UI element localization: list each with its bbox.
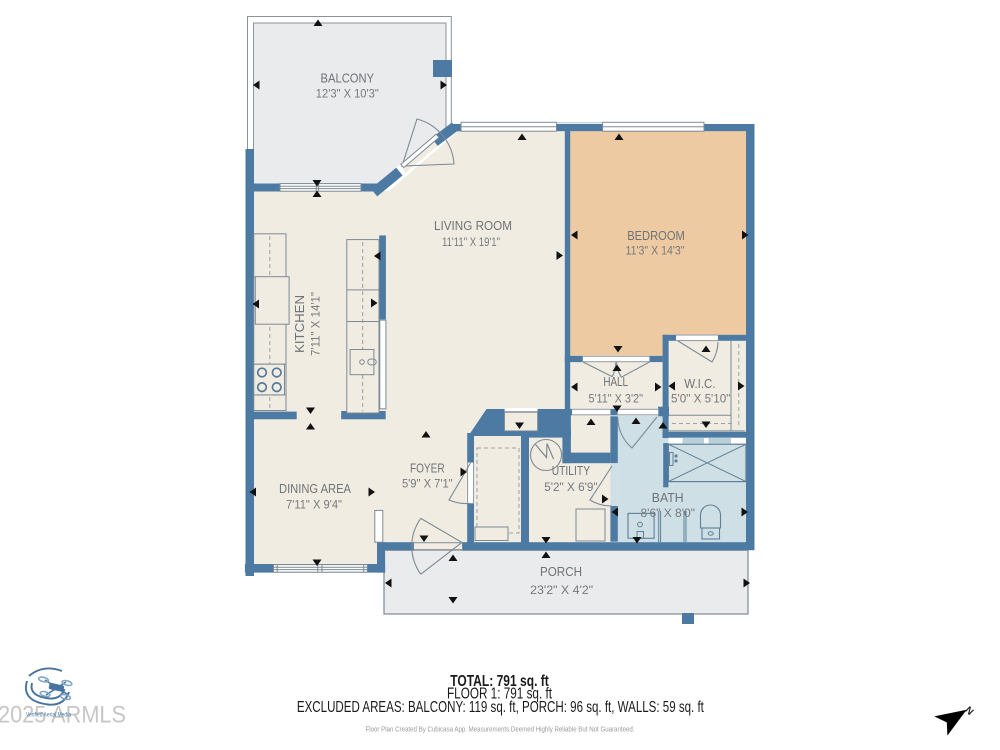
- svg-text:PORCH: PORCH: [540, 564, 582, 579]
- svg-text:23'2" X 4'2": 23'2" X 4'2": [530, 583, 593, 597]
- svg-text:7'11" X 14'1": 7'11" X 14'1": [309, 292, 323, 356]
- svg-text:BALCONY: BALCONY: [321, 71, 375, 86]
- svg-text:FOYER: FOYER: [410, 461, 445, 476]
- svg-text:5'2" X 6'9": 5'2" X 6'9": [544, 480, 597, 494]
- svg-text:11'11" X 19'1": 11'11" X 19'1": [442, 235, 500, 249]
- svg-text:5'11" X 3'2": 5'11" X 3'2": [588, 392, 643, 406]
- svg-text:Verified Aerial Media: Verified Aerial Media: [26, 712, 71, 719]
- svg-text:BATH: BATH: [652, 490, 684, 505]
- svg-text:12'3" X 10'3": 12'3" X 10'3": [316, 86, 379, 100]
- svg-text:LIVING ROOM: LIVING ROOM: [434, 218, 512, 233]
- svg-text:W.I.C.: W.I.C.: [684, 376, 715, 391]
- svg-text:5'0" X 5'10": 5'0" X 5'10": [671, 392, 730, 406]
- svg-text:7'11" X 9'4": 7'11" X 9'4": [286, 498, 342, 512]
- svg-text:UTILITY: UTILITY: [552, 463, 591, 478]
- svg-text:EXCLUDED AREAS: BALCONY: 119 s: EXCLUDED AREAS: BALCONY: 119 sq. ft, POR…: [297, 699, 705, 716]
- svg-text:Floor Plan Created By Cubicasa: Floor Plan Created By Cubicasa App. Meas…: [366, 725, 635, 734]
- svg-text:BEDROOM: BEDROOM: [627, 228, 685, 243]
- svg-text:8'6" X 8'0": 8'6" X 8'0": [641, 506, 695, 520]
- svg-text:11'3" X 14'3": 11'3" X 14'3": [626, 243, 685, 257]
- svg-text:HALL: HALL: [603, 374, 628, 389]
- svg-text:KITCHEN: KITCHEN: [292, 295, 307, 353]
- svg-text:5'9" X 7'1": 5'9" X 7'1": [402, 476, 453, 490]
- svg-text:DINING AREA: DINING AREA: [279, 481, 351, 496]
